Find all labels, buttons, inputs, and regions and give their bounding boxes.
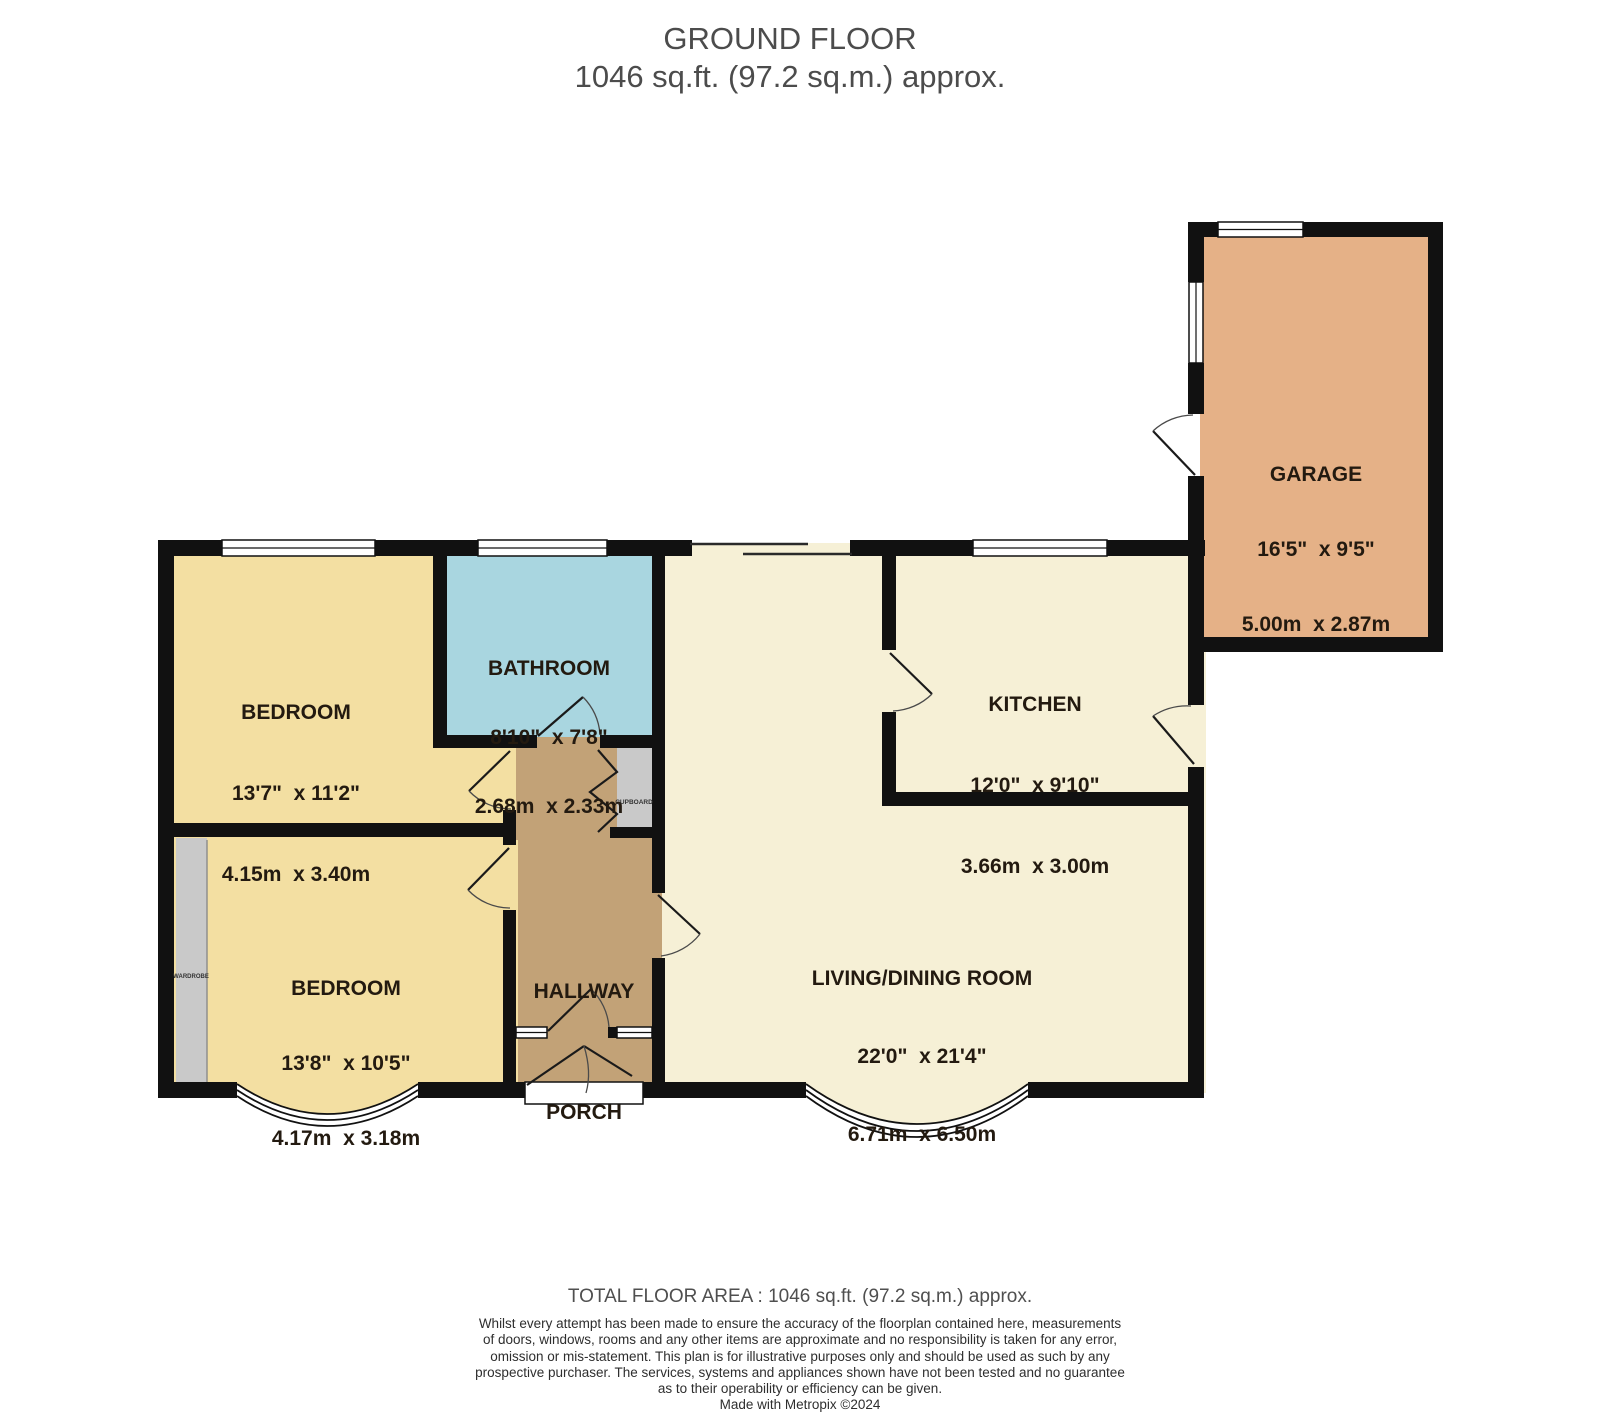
- wardrobe-label: WARDROBE: [171, 957, 211, 997]
- porch-label: PORCH: [484, 1050, 684, 1175]
- kitchen-window: [973, 540, 1107, 556]
- living-room-label: LIVING/DINING ROOM 22'0" x 21'4" 6.71m x…: [772, 914, 1072, 1200]
- bedroom2-label: BEDROOM 13'8" x 10'5" 4.17m x 3.18m: [196, 926, 496, 1201]
- plan-title: GROUND FLOOR 1046 sq.ft. (97.2 sq.m.) ap…: [390, 20, 1190, 96]
- cupboard-label: CUPBOARD: [614, 783, 654, 823]
- footer-disclaimer: Whilst every attempt has been made to en…: [300, 1316, 1300, 1412]
- kitchen-label: KITCHEN 12'0" x 9'10" 3.66m x 3.00m: [885, 637, 1185, 934]
- plan-title-line2: 1046 sq.ft. (97.2 sq.m.) approx.: [390, 58, 1190, 96]
- hallway-label: HALLWAY: [484, 929, 684, 1054]
- plan-title-line1: GROUND FLOOR: [390, 20, 1190, 58]
- footer-credit: Made with Metropix ©2024: [300, 1397, 1300, 1412]
- garage-top-window: [1218, 222, 1303, 237]
- floorplan-canvas: GROUND FLOOR 1046 sq.ft. (97.2 sq.m.) ap…: [0, 0, 1600, 1417]
- garage-side-window: [1189, 282, 1203, 363]
- bedroom1-window: [222, 540, 375, 556]
- bathroom-window: [478, 540, 607, 556]
- bathroom-label: BATHROOM 8'10" x 7'8" 2.68m x 2.33m: [399, 611, 699, 864]
- footer-total-area: TOTAL FLOOR AREA : 1046 sq.ft. (97.2 sq.…: [300, 1286, 1300, 1308]
- garage-label: GARAGE 16'5" x 9'5" 5.00m x 2.87m: [1166, 412, 1466, 687]
